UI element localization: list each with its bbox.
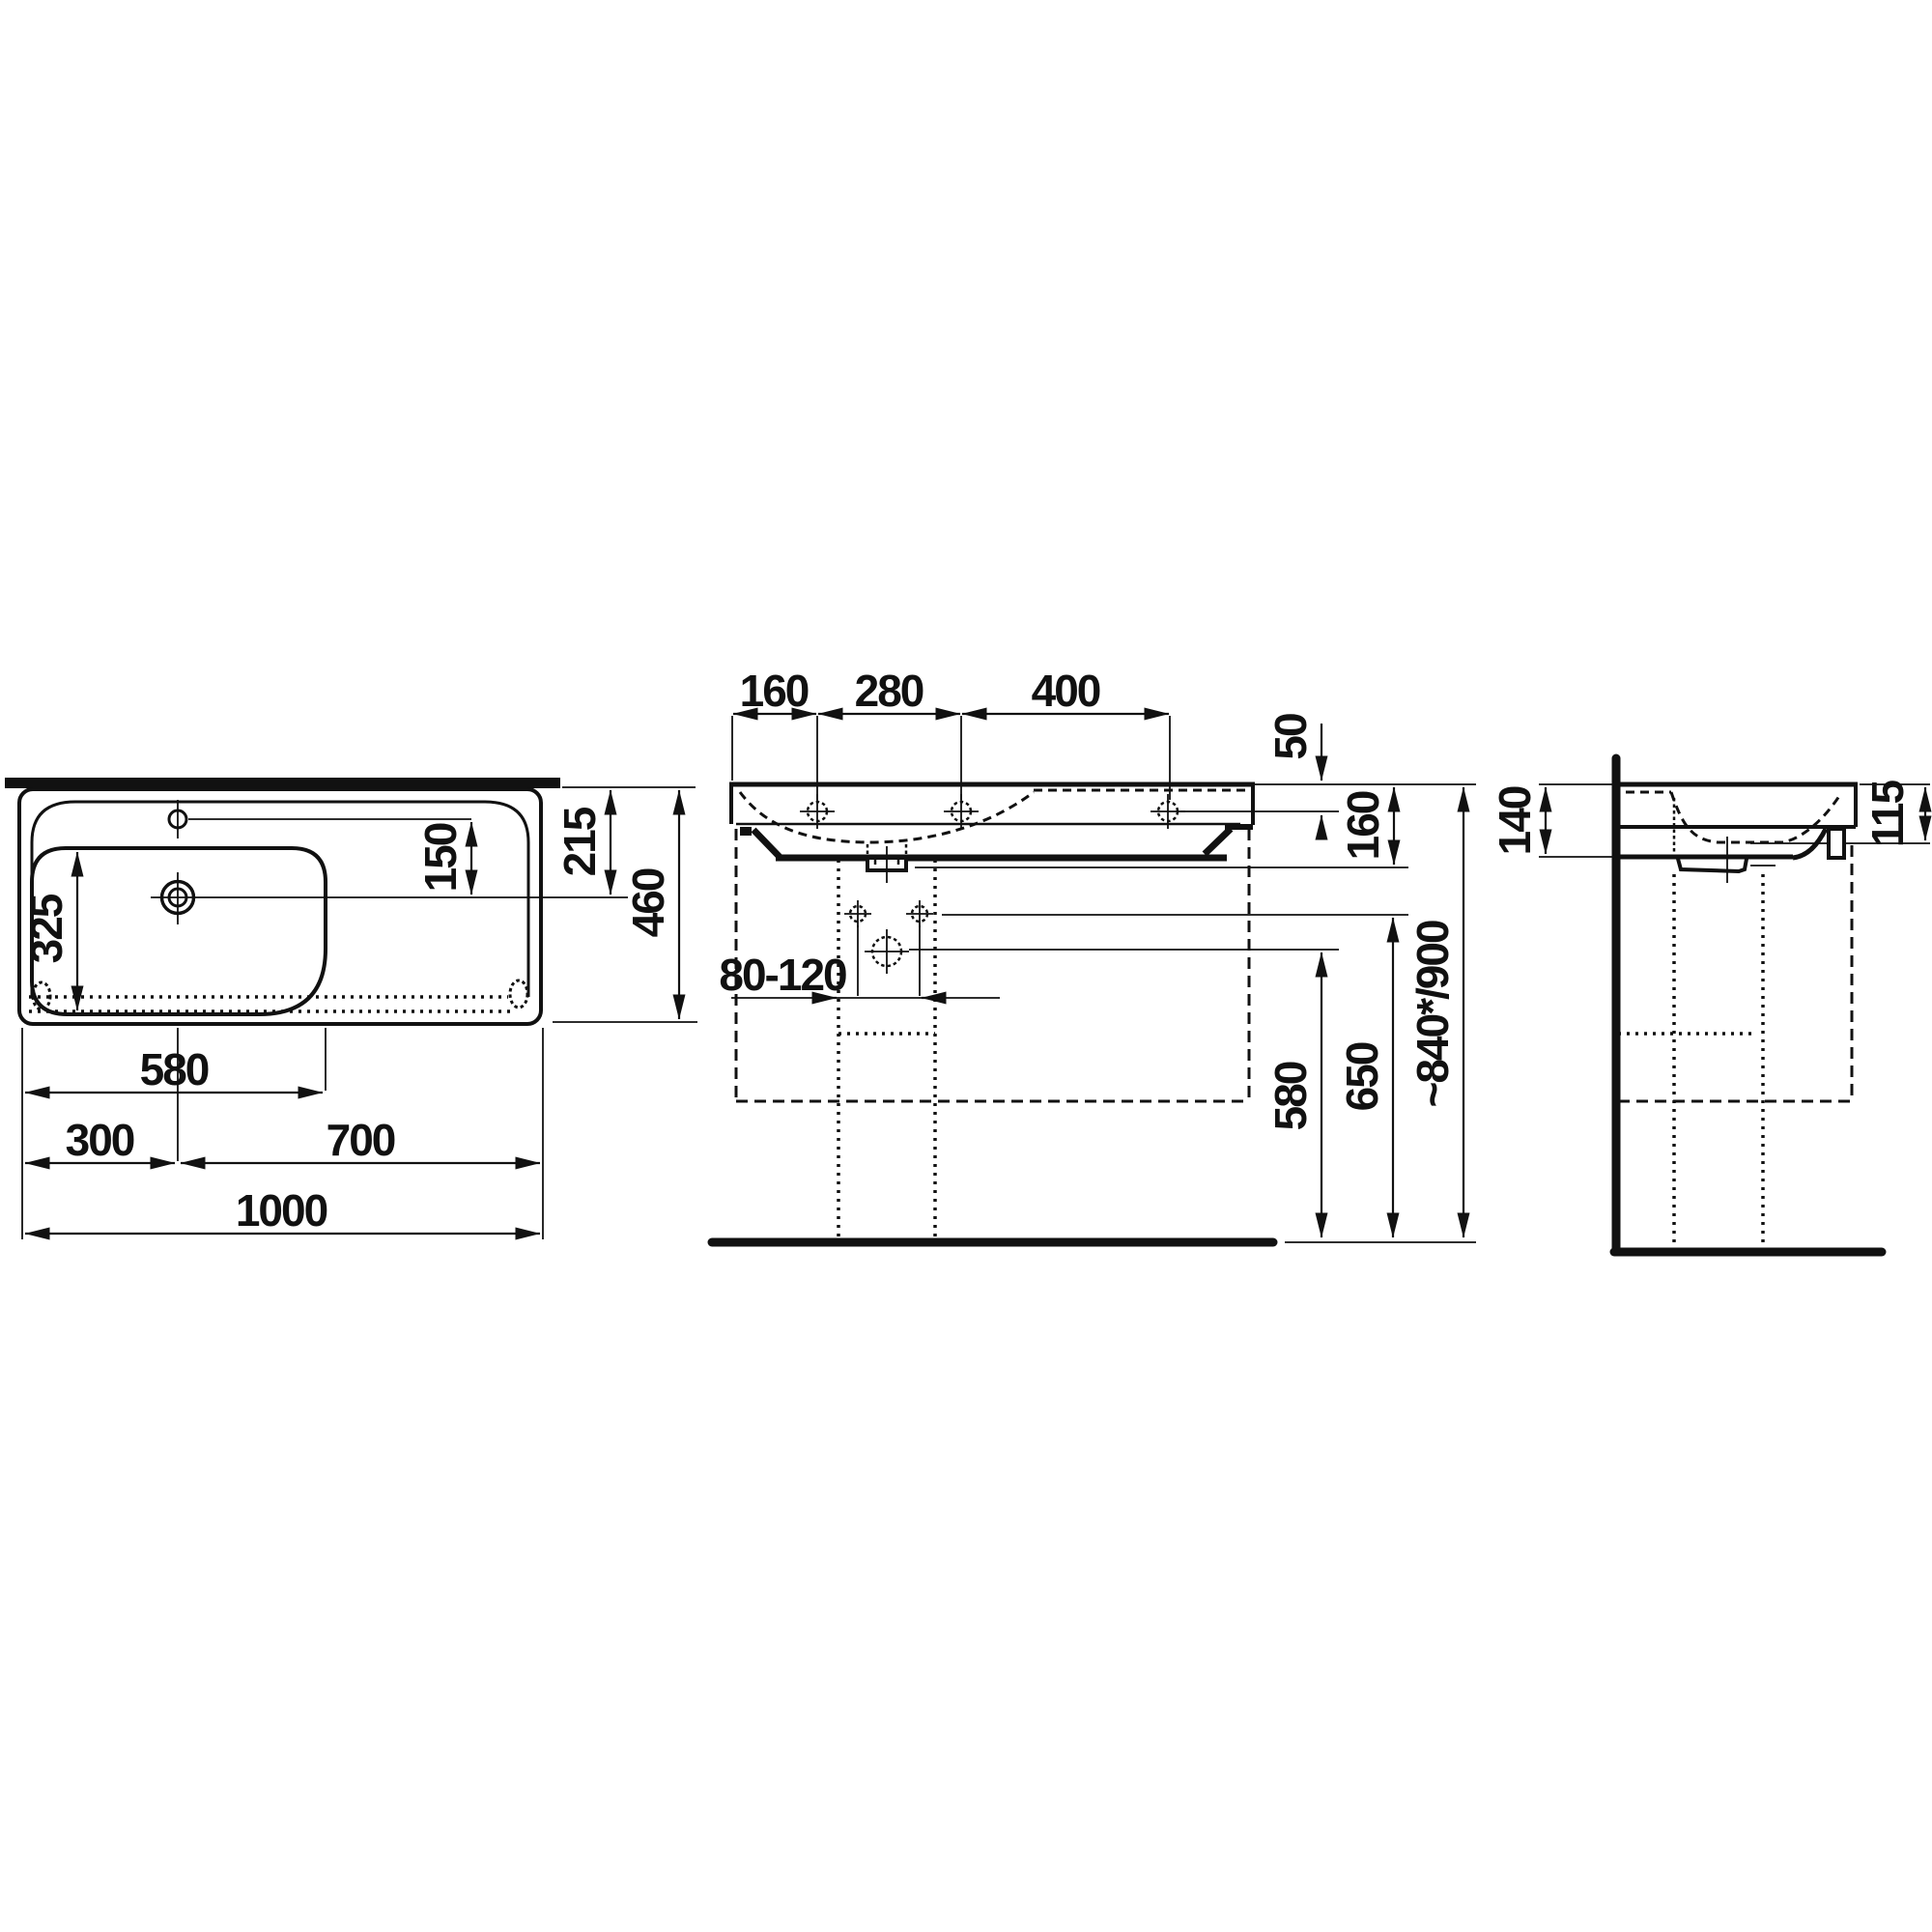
- side-outlet-box: [1829, 829, 1844, 858]
- dim-label-second-to-third-hole: 400: [1032, 666, 1100, 716]
- side-view: 140 115: [1490, 758, 1930, 1252]
- dim-label-bowl-width: 580: [140, 1044, 209, 1094]
- dim-label-front-edge-height: 115: [1862, 780, 1913, 847]
- dim-label-bowl-length: 325: [21, 894, 71, 963]
- plan-wall-line: [5, 778, 560, 788]
- dim-label-body-height: 140: [1490, 786, 1540, 855]
- dim-label-faucet-to-drain: 150: [415, 823, 466, 892]
- dim-label-rim-to-trap: 160: [1338, 791, 1388, 860]
- front-bolt-hole-left: [844, 900, 871, 996]
- dim-label-drain-to-right: 700: [327, 1115, 395, 1165]
- front-bottom-step-diagonal: [1205, 829, 1231, 854]
- dim-label-drain-from-left: 300: [66, 1115, 134, 1165]
- dim-label-floor-to-drain: 580: [1265, 1062, 1316, 1130]
- washbasin-dimension-drawing-page: 325 150 215 460 580 300 700 1000: [0, 0, 1932, 1932]
- dim-label-total-depth: 460: [623, 868, 673, 937]
- front-view: 160 280 400: [712, 666, 1476, 1242]
- dim-label-drain-from-back: 215: [554, 807, 605, 876]
- dim-label-floor-to-rim: ~840*/900: [1407, 921, 1458, 1107]
- dim-label-rim-to-hole: 50: [1265, 714, 1316, 760]
- side-hidden-bowl-curve: [1671, 792, 1841, 842]
- front-hidden-bowl-curve: [740, 792, 1034, 842]
- front-bolt-hole-right: [906, 900, 933, 996]
- front-bracket-diagonal: [753, 830, 780, 857]
- dim-label-total-width: 1000: [236, 1185, 327, 1236]
- front-drain-hole: [865, 929, 909, 974]
- dim-label-bolt-spacing: 80-120: [719, 950, 846, 1000]
- technical-drawing-canvas: 325 150 215 460 580 300 700 1000: [0, 0, 1932, 1932]
- side-trap-fitting: [1678, 859, 1747, 871]
- dim-label-edge-to-first-hole: 160: [740, 666, 809, 716]
- dim-label-floor-to-bolts: 650: [1337, 1042, 1387, 1111]
- front-wall-bracket: [740, 827, 752, 836]
- dim-label-first-to-second-hole: 280: [855, 666, 923, 716]
- plan-view: 325 150 215 460 580 300 700 1000: [5, 778, 697, 1239]
